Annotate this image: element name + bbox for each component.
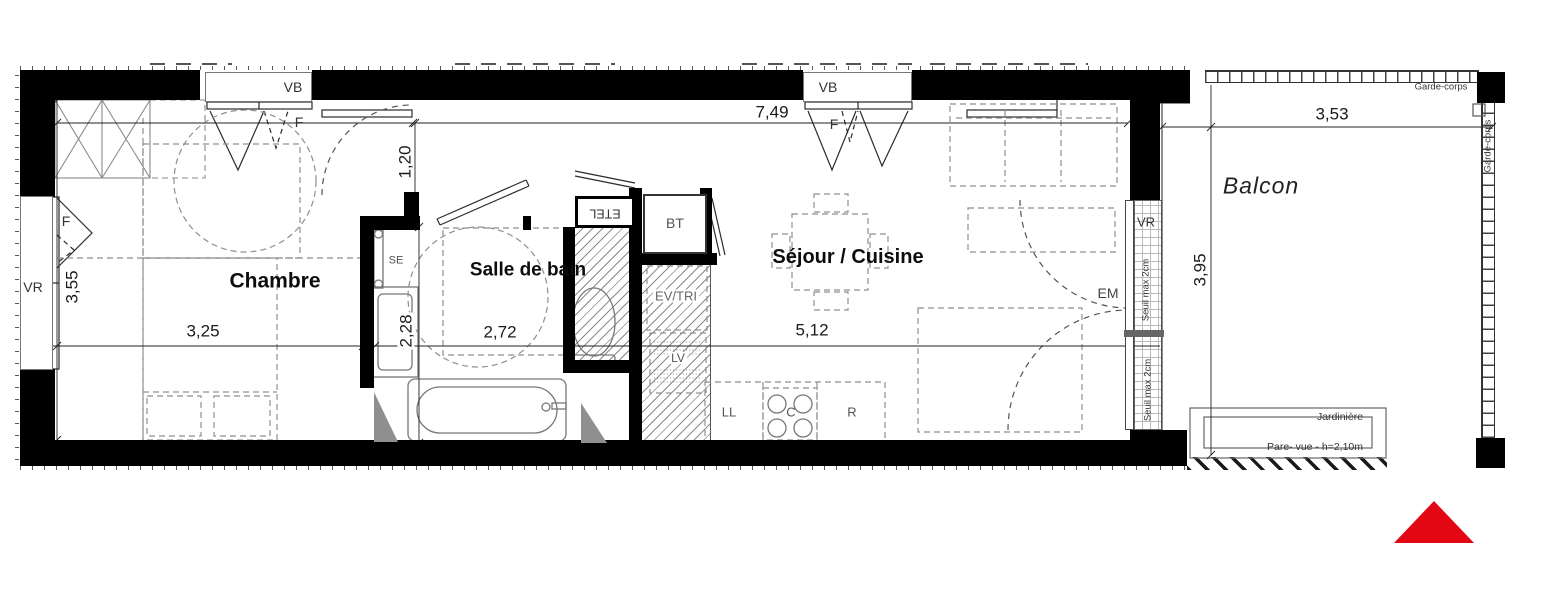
label-sink-sorting: EV/TRI <box>653 290 699 303</box>
bedroom-clearance <box>143 144 300 258</box>
sofa <box>950 104 1117 186</box>
bathtub-faucet <box>542 403 550 411</box>
label-planter: Jardinière <box>1317 412 1363 423</box>
label-cooktop: C <box>784 406 797 419</box>
chair <box>814 292 848 310</box>
label-vr-left: VR <box>23 280 42 294</box>
label-towel-dryer: SE <box>389 256 404 267</box>
dim-bathroom-height: 2,28 <box>398 312 415 349</box>
wall-post-top-right <box>1477 72 1505 103</box>
label-dishwasher: LV <box>669 352 687 364</box>
balcony-door-arc-lower <box>1008 310 1128 430</box>
room-label-balcony: Balcon <box>1223 175 1299 198</box>
dim-bedroom-width: 3,25 <box>186 323 219 340</box>
wall-right-lower <box>1130 430 1187 466</box>
cooktop-burner <box>768 395 786 413</box>
label-washer: LL <box>722 406 736 419</box>
etel-door-leaf <box>575 171 635 188</box>
label-vb2: VB <box>819 80 838 94</box>
entry-door-leaf <box>967 110 1057 117</box>
wall-top-2 <box>312 70 803 100</box>
wall-right-upper <box>1130 70 1160 200</box>
bathroom-door-leaf <box>437 180 529 225</box>
wall-door-jamb <box>404 192 419 218</box>
bedroom-turning-circle <box>174 110 316 252</box>
wall-bath-jamb <box>523 216 531 230</box>
label-f3: F <box>62 214 71 228</box>
wardrobe <box>55 100 205 178</box>
label-f1: F <box>295 115 304 129</box>
dim-balcony-depth: 3,95 <box>1192 253 1209 286</box>
dim-balcony-width: 3,53 <box>1315 106 1348 123</box>
label-f2: F <box>830 117 839 131</box>
wall-left-upper <box>20 70 55 197</box>
label-fridge: R <box>847 406 856 419</box>
dim-bedroom-height: 3,55 <box>64 270 81 303</box>
pillow <box>214 396 270 436</box>
wall-post-bottom-right <box>1476 438 1505 468</box>
wall-bedroom-bathroom <box>360 216 374 388</box>
bedroom-door-leaf <box>322 110 412 117</box>
label-guardrail-right: Garde-corps <box>1483 120 1493 173</box>
cooktop-burner <box>768 419 786 437</box>
balcony-glazing <box>1125 200 1134 430</box>
label-vr-right: VR <box>1137 216 1155 229</box>
vb1-casement-swing <box>210 111 264 170</box>
label-threshold-lower: Seuil max 2cm <box>1143 359 1153 421</box>
balcony-frame-mid <box>1124 330 1164 337</box>
low-furniture <box>968 208 1115 252</box>
room-label-living: Séjour / Cuisine <box>772 247 923 267</box>
wall-balcony-corner <box>1160 70 1190 103</box>
living-clearance <box>918 308 1082 432</box>
wall-wc-bottom <box>573 360 629 373</box>
room-label-bathroom: Salle de bain <box>470 261 586 280</box>
pillow <box>147 396 201 436</box>
cooktop-burner <box>794 419 812 437</box>
label-bt: BT <box>666 216 684 230</box>
label-guardrail-top: Garde-corps <box>1415 82 1468 92</box>
guardrail-post-marker <box>1473 104 1485 116</box>
dim-living-width: 7,49 <box>755 104 788 121</box>
label-vb1: VB <box>284 80 303 94</box>
floor-plan: Chambre Salle de bain Séjour / Cuisine B… <box>0 0 1547 606</box>
label-etel: ETEL <box>589 207 620 220</box>
wall-bottom <box>20 440 1187 466</box>
dim-bathroom-width: 2,72 <box>483 324 516 341</box>
room-label-bedroom: Chambre <box>229 271 320 292</box>
chair <box>814 194 848 212</box>
dim-living-span: 5,12 <box>795 322 828 339</box>
dim-hall-width: 1,20 <box>397 145 414 178</box>
label-privacy-screen: Pare- vue - h=2,10m <box>1267 442 1363 453</box>
wall-bathroom-wc <box>563 227 575 373</box>
label-em: EM <box>1098 286 1119 300</box>
builder-logo-triangle <box>1394 501 1474 543</box>
towel-radiator <box>374 230 383 288</box>
label-threshold-upper: Seuil max 2cm <box>1141 259 1151 321</box>
